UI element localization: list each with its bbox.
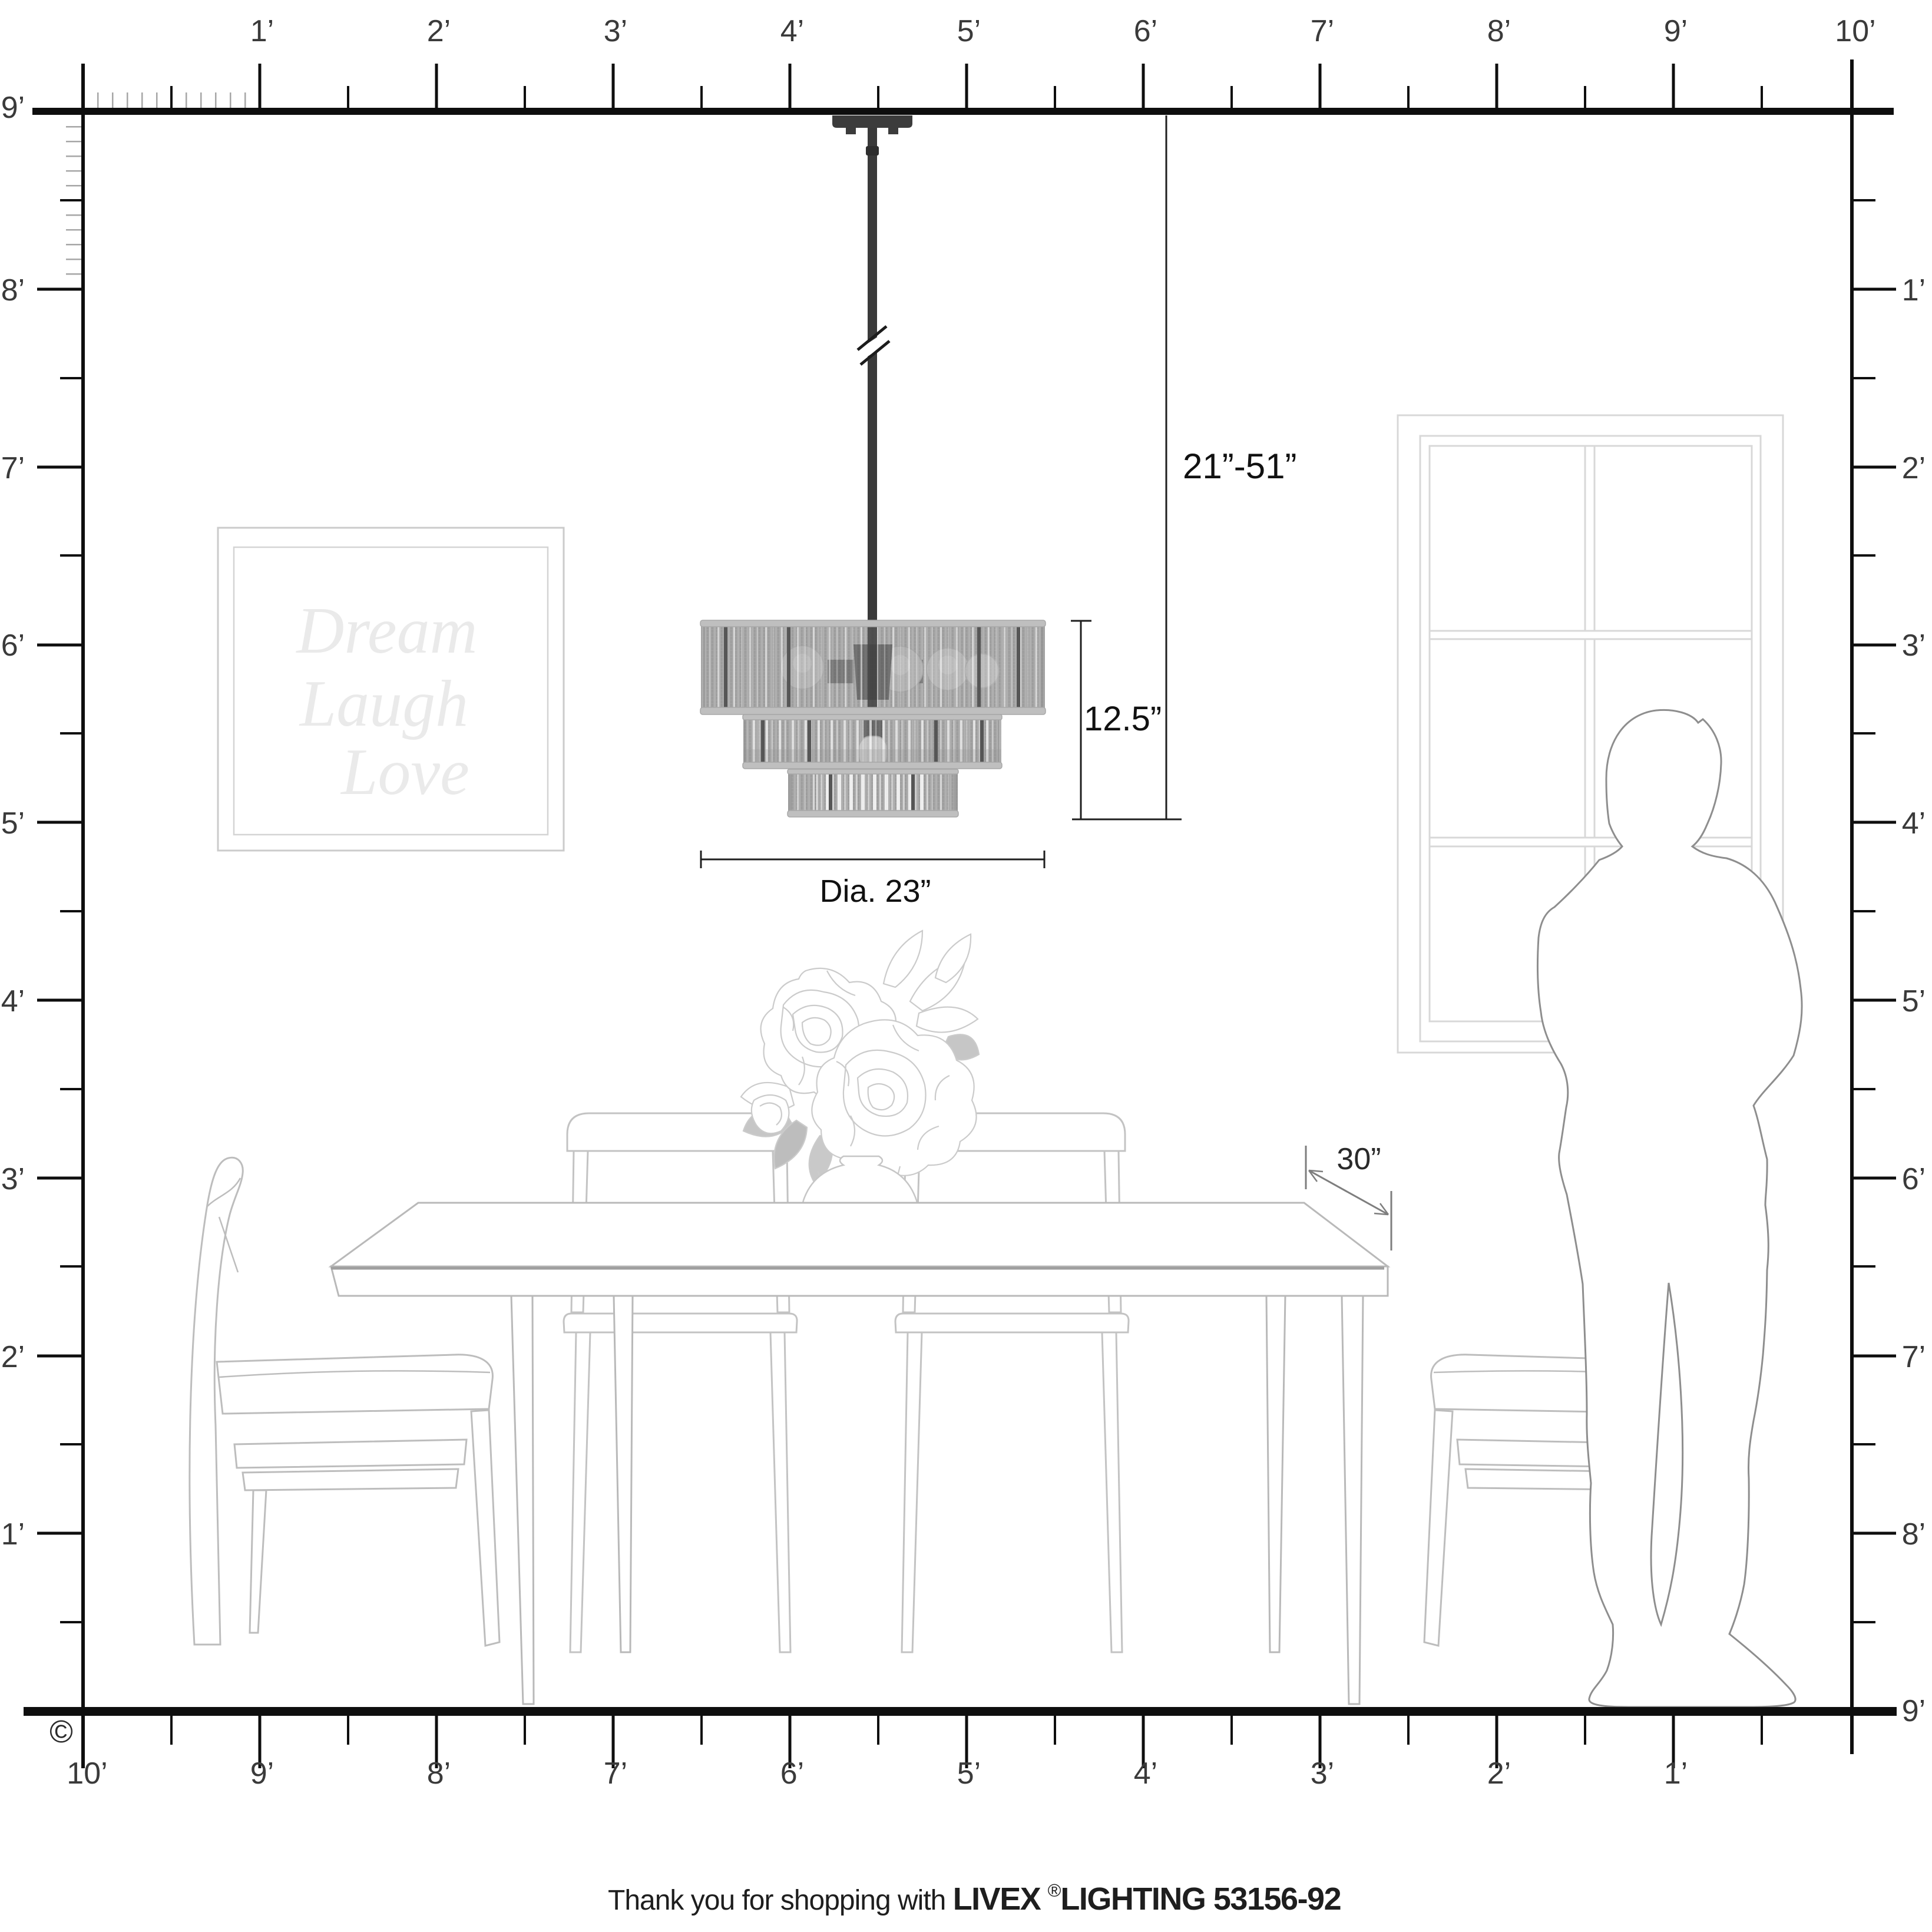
svg-text:8’: 8’: [1487, 14, 1511, 48]
svg-text:21”-51”: 21”-51”: [1183, 446, 1296, 486]
svg-text:7’: 7’: [604, 1756, 627, 1791]
svg-text:Laugh: Laugh: [299, 667, 468, 740]
svg-text:4’: 4’: [1, 984, 25, 1018]
svg-text:9’: 9’: [250, 1756, 274, 1791]
svg-text:6’: 6’: [1134, 14, 1157, 48]
svg-text:Thank you for shopping with LI: Thank you for shopping with LIVEX ®LIGHT…: [608, 1880, 1341, 1917]
svg-text:6’: 6’: [1902, 1162, 1926, 1196]
svg-text:9’: 9’: [1902, 1694, 1926, 1728]
svg-text:8’: 8’: [1, 273, 25, 307]
svg-text:3’: 3’: [1311, 1756, 1334, 1791]
svg-text:6’: 6’: [1, 628, 25, 663]
svg-text:©: ©: [49, 1714, 73, 1749]
svg-text:7’: 7’: [1902, 1340, 1926, 1374]
svg-text:3’: 3’: [1902, 628, 1926, 663]
svg-text:Love: Love: [340, 736, 469, 809]
svg-text:8’: 8’: [427, 1756, 451, 1791]
svg-text:Dream: Dream: [296, 594, 478, 667]
svg-text:7’: 7’: [1, 451, 25, 485]
svg-text:Dia. 23”: Dia. 23”: [819, 874, 931, 909]
svg-text:30”: 30”: [1336, 1142, 1381, 1176]
svg-text:7’: 7’: [1311, 14, 1334, 48]
svg-text:3’: 3’: [604, 14, 627, 48]
svg-text:5’: 5’: [1902, 984, 1926, 1018]
svg-text:2’: 2’: [1902, 451, 1926, 485]
svg-text:5’: 5’: [1, 806, 25, 841]
svg-text:10’: 10’: [1835, 14, 1875, 48]
svg-text:10’: 10’: [67, 1756, 107, 1791]
svg-text:4’: 4’: [780, 14, 804, 48]
svg-text:1’: 1’: [1, 1517, 25, 1551]
svg-text:6’: 6’: [780, 1756, 804, 1791]
svg-text:12.5”: 12.5”: [1084, 700, 1162, 738]
svg-text:2’: 2’: [427, 14, 451, 48]
svg-text:3’: 3’: [1, 1162, 25, 1196]
svg-text:5’: 5’: [957, 1756, 981, 1791]
svg-text:4’: 4’: [1134, 1756, 1157, 1791]
svg-text:1’: 1’: [1664, 1756, 1688, 1791]
svg-text:8’: 8’: [1902, 1517, 1926, 1551]
svg-text:1’: 1’: [250, 14, 274, 48]
svg-text:9’: 9’: [1, 91, 25, 125]
svg-text:9’: 9’: [1664, 14, 1688, 48]
svg-text:4’: 4’: [1902, 806, 1926, 841]
svg-text:1’: 1’: [1902, 273, 1926, 307]
svg-text:2’: 2’: [1487, 1756, 1511, 1791]
svg-text:2’: 2’: [1, 1340, 25, 1374]
svg-text:5’: 5’: [957, 14, 981, 48]
